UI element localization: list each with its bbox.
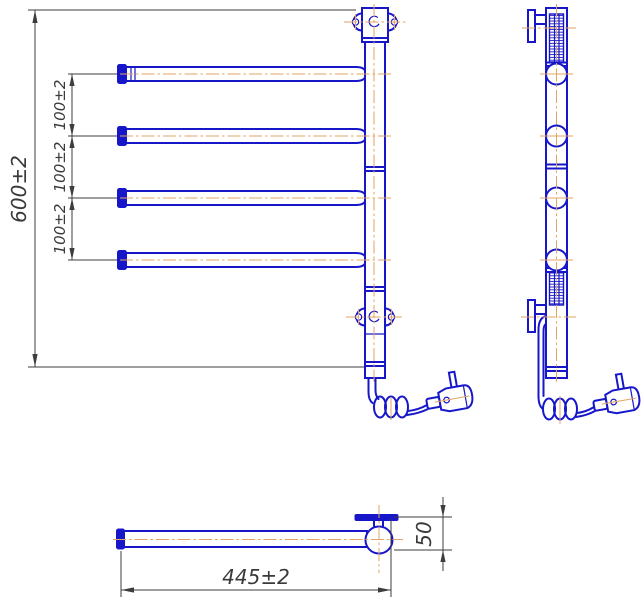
- towel-bar: [118, 251, 367, 270]
- towel-bar: [118, 127, 367, 146]
- dim-label-bar-spacing-3: 100±2: [51, 204, 69, 255]
- dim-label-bar-length: 445±2: [222, 565, 290, 589]
- dimension-wall-offset: 50: [394, 497, 452, 571]
- power-plug-icon: [589, 371, 641, 416]
- drawing-canvas: 600±2 100±2 100±2 100±2: [0, 0, 642, 600]
- dimension-bar-spacing: 100±2 100±2 100±2: [51, 74, 117, 260]
- towel-rail-technical-drawing: 600±2 100±2 100±2 100±2: [0, 0, 642, 600]
- wall-bracket-top-side: [528, 10, 546, 42]
- side-view: [521, 4, 641, 424]
- dim-label-bar-spacing-1: 100±2: [51, 80, 69, 131]
- towel-bar: [118, 65, 367, 84]
- power-plug-icon: [422, 369, 474, 414]
- dim-label-bar-spacing-2: 100±2: [51, 142, 69, 193]
- front-view: 600±2 100±2 100±2 100±2: [7, 4, 474, 420]
- dim-label-overall-height: 600±2: [7, 155, 31, 223]
- dim-label-wall-offset: 50: [412, 521, 436, 546]
- bottom-view: 445±2 50: [113, 497, 452, 597]
- towel-bar: [118, 189, 367, 208]
